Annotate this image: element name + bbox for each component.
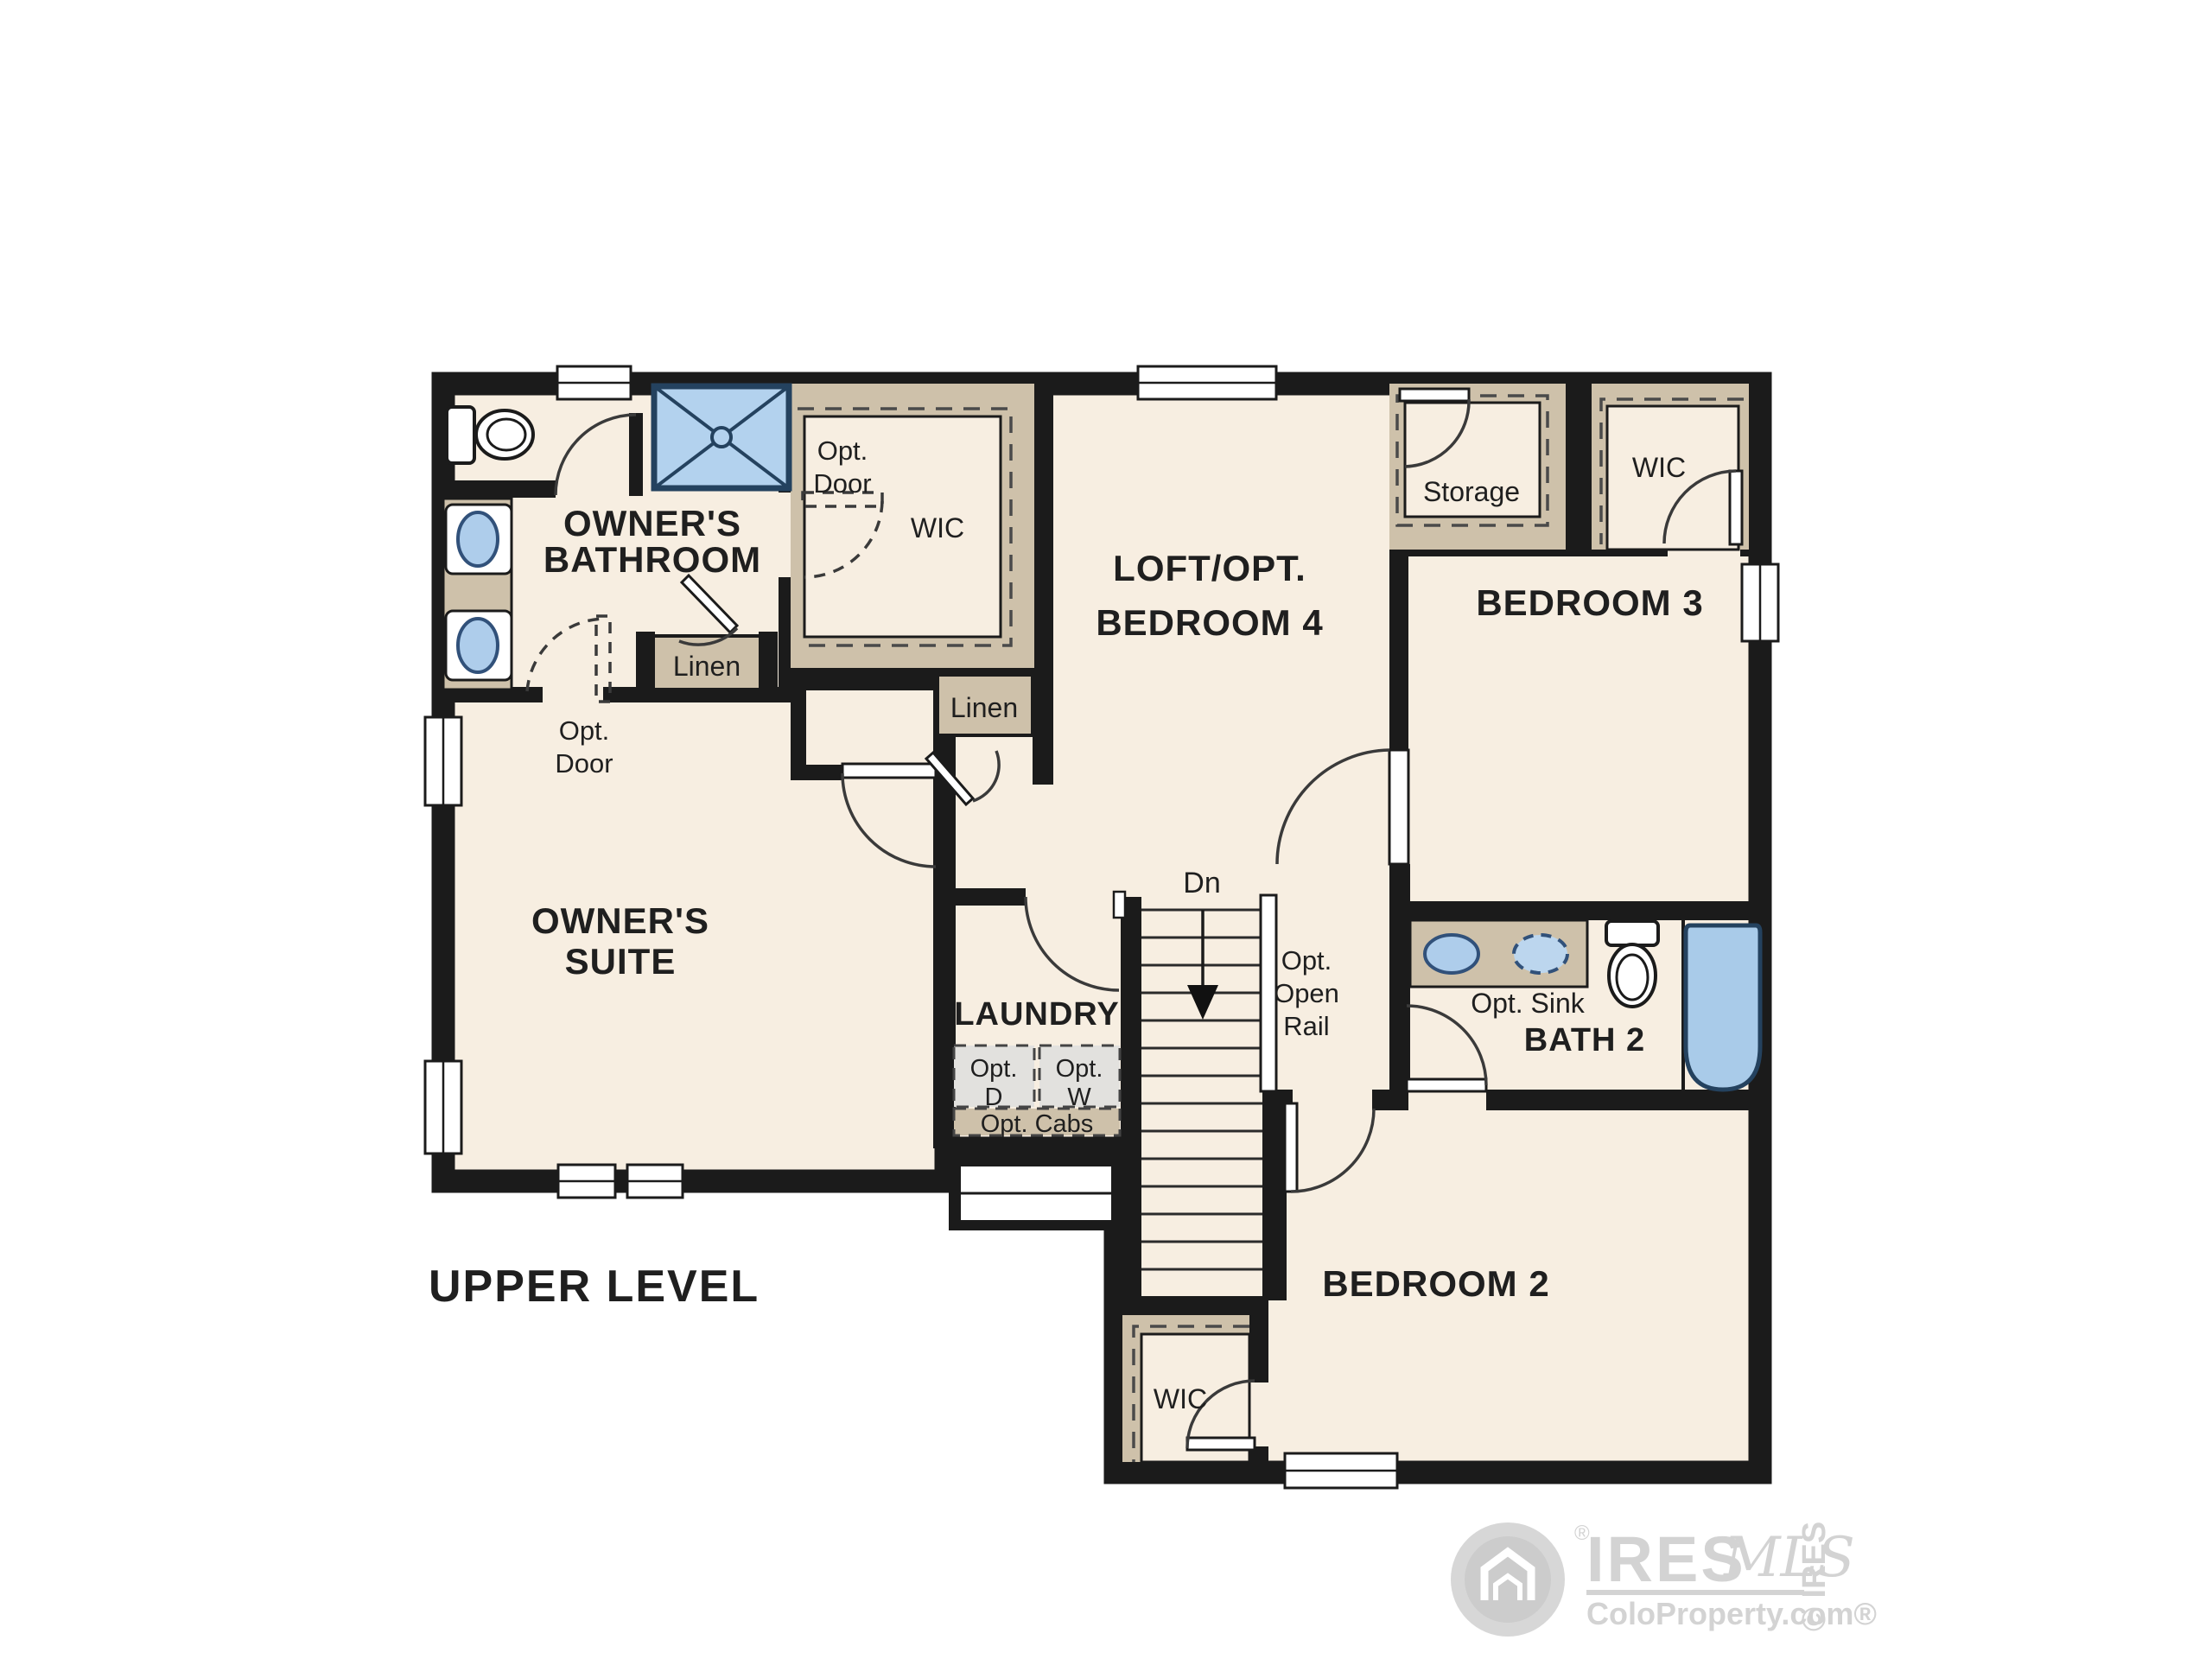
toilet-bath2-icon xyxy=(1606,921,1658,1007)
opt-dryer-label-1: Opt. xyxy=(970,1055,1018,1083)
watermark-logo: ® IRES MLS ColoProperty.com® © IRES xyxy=(1451,1522,1877,1637)
wall-bath2-bottom-b xyxy=(1372,1090,1408,1110)
laundry-label: LAUNDRY xyxy=(954,996,1119,1033)
watermark-side-text: © IRES xyxy=(1796,1522,1833,1631)
owners-suite-label-2: SUITE xyxy=(565,941,677,982)
wall-wic2-top xyxy=(1104,1296,1268,1315)
toilet-owners-icon xyxy=(447,407,533,463)
wall-bath2-top xyxy=(1389,901,1771,920)
opt-door-suite-label-1: Opt. xyxy=(559,715,610,746)
wall-loft-left xyxy=(1033,372,1053,785)
opt-door-suite-label-2: Door xyxy=(555,748,613,779)
door-toilet-leaf xyxy=(629,413,643,496)
opt-open-rail-label-1: Opt. xyxy=(1281,945,1332,976)
wall-storage-wic-divider xyxy=(1566,372,1592,550)
window-left-suite xyxy=(425,1061,461,1154)
wall-bath2-bottom-c xyxy=(1486,1090,1771,1110)
wall-toilet-room xyxy=(443,480,556,498)
wall-suite-top xyxy=(791,765,842,780)
tub-icon xyxy=(1686,925,1760,1090)
watermark-brand: IRES xyxy=(1586,1523,1746,1595)
watermark-brand-script: MLS xyxy=(1723,1526,1855,1590)
door-bedroom3-leaf xyxy=(1389,750,1408,864)
window-suite-bottom-1 xyxy=(558,1165,615,1198)
door-storage-leaf xyxy=(1400,389,1469,401)
window-top-bathroom xyxy=(557,366,631,399)
opt-washer-label-2: W xyxy=(1067,1084,1091,1111)
owners-sink-2-icon xyxy=(446,611,512,680)
opt-washer-label-1: Opt. xyxy=(1056,1055,1103,1083)
storage-label: Storage xyxy=(1423,476,1520,507)
window-left-bathroom xyxy=(425,717,461,805)
opt-cabs-label: Opt. Cabs xyxy=(981,1110,1094,1138)
door-suite-leaf xyxy=(842,764,936,778)
wall-laundry-top xyxy=(946,888,1026,906)
opt-door-wic-label-1: Opt. xyxy=(817,435,868,466)
door-wic2-leaf xyxy=(1187,1438,1255,1450)
stairs-down-label: Dn xyxy=(1183,867,1220,899)
bath2-opt-sink-label: Opt. Sink xyxy=(1471,988,1586,1019)
opt-door-wic-label-2: Door xyxy=(813,468,871,499)
window-suite-bottom-2 xyxy=(627,1165,683,1198)
wic-top-right-label: WIC xyxy=(1632,452,1686,483)
wall-stairs-left xyxy=(1121,897,1141,1300)
owners-sink-1-icon xyxy=(446,505,512,574)
owners-bathroom-label-2: BATHROOM xyxy=(543,539,761,580)
loft-label-2: BEDROOM 4 xyxy=(1096,602,1323,643)
door-wic-top-right-leaf xyxy=(1730,471,1742,544)
wall-wic2-right-upper xyxy=(1249,1315,1268,1382)
window-top-loft xyxy=(1138,366,1276,399)
wall-stairs-right xyxy=(1262,1090,1287,1300)
floor-plan-drawing: OWNER'S BATHROOM WIC Opt. Door Linen Lin… xyxy=(0,0,2212,1659)
owners-wic-label: WIC xyxy=(911,512,964,543)
opt-open-rail-label-3: Rail xyxy=(1283,1011,1329,1041)
loft-label-1: LOFT/OPT. xyxy=(1113,548,1306,588)
bath2-label: BATH 2 xyxy=(1524,1022,1645,1058)
floor-plan-page: OWNER'S BATHROOM WIC Opt. Door Linen Lin… xyxy=(0,0,2212,1659)
bath2-opt-sink-icon xyxy=(1514,935,1567,973)
opt-dryer-label-2: D xyxy=(985,1084,1003,1111)
window-bedroom2-bottom xyxy=(1285,1453,1397,1488)
bedroom2-label: BEDROOM 2 xyxy=(1322,1263,1549,1304)
bath2-sink-icon xyxy=(1425,935,1478,973)
watermark-site: ColoProperty.com® xyxy=(1586,1596,1877,1631)
bedroom3-label: BEDROOM 3 xyxy=(1476,582,1703,623)
level-label: UPPER LEVEL xyxy=(429,1262,760,1312)
wall-bath2-left xyxy=(1389,864,1410,1091)
watermark-underline xyxy=(1586,1590,1804,1595)
shower-icon xyxy=(654,386,789,488)
linen-bath-label: Linen xyxy=(673,651,741,682)
owners-suite-label-1: OWNER'S xyxy=(531,900,709,941)
opt-open-rail-label-2: Open xyxy=(1274,978,1339,1008)
door-bedroom2-leaf xyxy=(1285,1103,1297,1192)
wic-bedroom2-label: WIC xyxy=(1154,1383,1207,1414)
stair-newel xyxy=(1114,892,1125,918)
owners-bathroom-label-1: OWNER'S xyxy=(563,503,741,543)
door-bath2-leaf xyxy=(1407,1079,1486,1091)
window-bedroom3-right xyxy=(1742,564,1778,641)
wall-hall-laundry-divider xyxy=(933,674,956,1148)
linen-hall-label: Linen xyxy=(950,692,1018,723)
